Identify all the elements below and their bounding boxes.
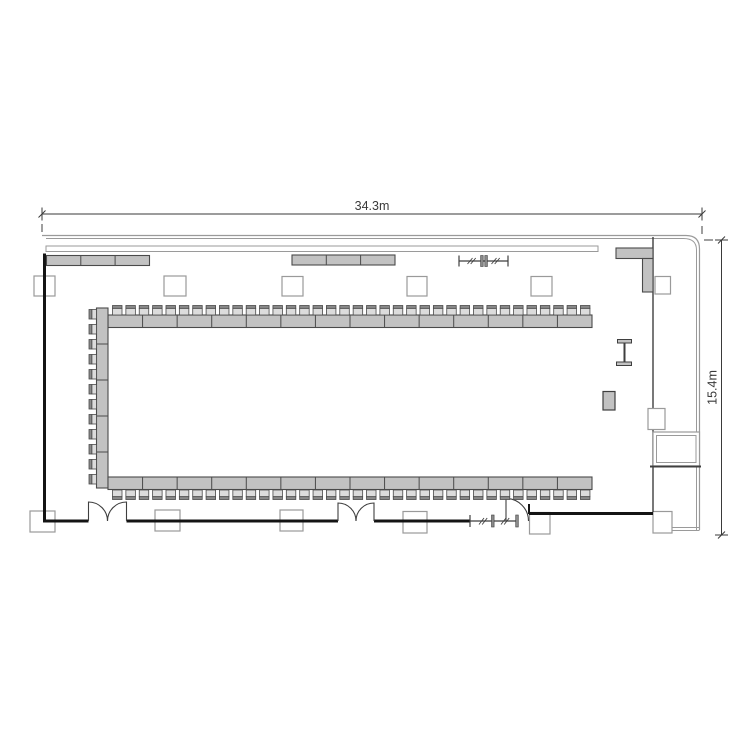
dim-height-label: 15.4m: [706, 370, 720, 405]
chair-row-top-back: [460, 306, 470, 309]
chair-row-top-back: [206, 306, 216, 309]
chair-row-top: [260, 308, 270, 315]
chair-row-bottom: [166, 490, 176, 497]
chair-row-top: [393, 308, 403, 315]
chair-row-bottom-back: [219, 497, 229, 500]
chair-row-bottom: [139, 490, 149, 497]
chair-row-bottom-back: [380, 497, 390, 500]
chair-row-bottom-back: [340, 497, 350, 500]
chair-row-bottom: [367, 490, 377, 497]
chair-col-left-back: [89, 340, 92, 350]
chair-row-bottom-back: [139, 497, 149, 500]
chair-row-top: [300, 308, 310, 315]
double-door-mid-leaf-a: [338, 503, 356, 521]
chair-col-left: [92, 340, 97, 350]
chair-row-top-back: [326, 306, 336, 309]
chair-row-bottom-back: [540, 497, 550, 500]
chair-row-bottom: [393, 490, 403, 497]
chair-row-bottom-back: [206, 497, 216, 500]
chair-col-left-back: [89, 355, 92, 365]
chair-row-bottom-back: [554, 497, 564, 500]
chair-row-top: [326, 308, 336, 315]
chair-row-bottom: [219, 490, 229, 497]
chair-row-bottom-back: [580, 497, 590, 500]
chair-row-top-back: [166, 306, 176, 309]
chair-row-top-back: [487, 306, 497, 309]
chair-col-left-back: [89, 475, 92, 485]
chair-row-bottom-back: [487, 497, 497, 500]
chair-row-bottom-back: [126, 497, 135, 500]
chair-row-top-back: [420, 306, 430, 309]
chair-row-bottom: [260, 490, 270, 497]
chair-row-bottom: [554, 490, 564, 497]
chair-col-left: [92, 445, 97, 455]
chair-row-bottom: [286, 490, 296, 497]
chair-row-bottom-back: [286, 497, 296, 500]
chair-row-top-back: [433, 306, 443, 309]
chair-row-top: [380, 308, 390, 315]
chair-row-top: [433, 308, 443, 315]
chair-col-left-back: [89, 370, 92, 380]
partition-bottom-stack: [492, 515, 495, 527]
chair-col-left-back: [89, 400, 92, 410]
chair-row-bottom: [473, 490, 483, 497]
chair-row-top: [460, 308, 470, 315]
chair-row-top: [313, 308, 323, 315]
chair-row-top-back: [179, 306, 189, 309]
chair-row-bottom: [500, 490, 510, 497]
chair-row-bottom: [153, 490, 163, 497]
chair-row-top: [166, 308, 176, 315]
chair-row-bottom: [380, 490, 390, 497]
chair-row-bottom: [113, 490, 123, 497]
chair-col-left-back: [89, 445, 92, 455]
chair-col-left: [92, 460, 97, 470]
chair-row-top: [567, 308, 577, 315]
chair-row-bottom-back: [326, 497, 336, 500]
chair-col-left-back: [89, 460, 92, 470]
chair-row-bottom-back: [179, 497, 189, 500]
chair-row-bottom: [514, 490, 524, 497]
chair-row-bottom: [407, 490, 417, 497]
chair-row-top: [126, 308, 135, 315]
chair-row-top: [514, 308, 524, 315]
chair-row-top-back: [126, 306, 135, 309]
chair-row-top: [487, 308, 497, 315]
chair-row-bottom: [340, 490, 350, 497]
chair-row-bottom: [193, 490, 203, 497]
chair-col-left: [92, 355, 97, 365]
chair-row-top: [500, 308, 510, 315]
chair-row-bottom: [273, 490, 283, 497]
corner-counter-v: [643, 259, 654, 293]
chair-row-top: [580, 308, 590, 315]
chair-row-bottom-back: [567, 497, 577, 500]
chair-row-top: [407, 308, 417, 315]
chair-row-bottom-back: [407, 497, 417, 500]
chair-row-bottom-back: [353, 497, 363, 500]
chair-row-top: [340, 308, 350, 315]
chair-col-left: [92, 325, 97, 335]
chair-row-top-back: [113, 306, 123, 309]
chair-col-left: [92, 370, 97, 380]
chair-row-top: [139, 308, 149, 315]
chair-row-bottom-back: [393, 497, 403, 500]
chair-col-left-back: [89, 385, 92, 395]
chair-row-bottom-back: [153, 497, 163, 500]
chair-row-bottom: [527, 490, 537, 497]
chair-row-bottom: [313, 490, 323, 497]
chair-row-top: [527, 308, 537, 315]
chair-row-top: [367, 308, 377, 315]
chair-row-top: [353, 308, 363, 315]
chair-row-bottom: [447, 490, 457, 497]
chair-row-bottom-back: [260, 497, 270, 500]
chair-row-bottom-back: [447, 497, 457, 500]
chair-row-top-back: [500, 306, 510, 309]
chair-row-top-back: [219, 306, 229, 309]
screen-cap-bottom: [617, 362, 632, 366]
chair-row-top-back: [300, 306, 310, 309]
chair-row-top: [179, 308, 189, 315]
chair-row-top-back: [473, 306, 483, 309]
chair-row-top-back: [407, 306, 417, 309]
chair-col-left: [92, 415, 97, 425]
chair-row-top-back: [514, 306, 524, 309]
chair-row-bottom: [353, 490, 363, 497]
chair-row-top-back: [540, 306, 550, 309]
chair-row-top: [219, 308, 229, 315]
column: [648, 409, 665, 430]
chair-row-top: [113, 308, 123, 315]
double-door-left-leaf-a: [89, 502, 108, 521]
chair-row-bottom-back: [193, 497, 203, 500]
chair-row-bottom: [580, 490, 590, 497]
partition-top-stack: [481, 256, 484, 267]
chair-row-top: [554, 308, 564, 315]
window-band: [46, 246, 598, 252]
chair-row-bottom: [567, 490, 577, 497]
chair-row-top: [233, 308, 243, 315]
counter: [292, 255, 395, 265]
column: [407, 277, 427, 297]
chair-col-left: [92, 385, 97, 395]
chair-col-left: [92, 475, 97, 485]
chair-row-bottom-back: [113, 497, 123, 500]
chair-col-left-back: [89, 415, 92, 425]
chair-row-top-back: [393, 306, 403, 309]
chair-row-top-back: [353, 306, 363, 309]
chair-row-bottom-back: [313, 497, 323, 500]
chair-row-bottom: [540, 490, 550, 497]
table-run-left: [97, 308, 109, 488]
chair-row-bottom: [420, 490, 430, 497]
chair-row-top-back: [193, 306, 203, 309]
chair-row-top-back: [153, 306, 163, 309]
chair-col-left-back: [89, 430, 92, 440]
chair-row-bottom: [460, 490, 470, 497]
corner-counter-h: [616, 248, 653, 259]
chair-row-bottom-back: [300, 497, 310, 500]
column: [530, 513, 551, 535]
chair-row-top-back: [340, 306, 350, 309]
chair-row-bottom: [487, 490, 497, 497]
chair-row-bottom: [326, 490, 336, 497]
chair-row-top-back: [447, 306, 457, 309]
chair-col-left: [92, 400, 97, 410]
chair-row-bottom-back: [514, 497, 524, 500]
chair-row-top: [206, 308, 216, 315]
chair-row-bottom-back: [166, 497, 176, 500]
chair-col-left-back: [89, 325, 92, 335]
chair-row-top-back: [139, 306, 149, 309]
chair-row-bottom-back: [473, 497, 483, 500]
chair-row-bottom: [433, 490, 443, 497]
chair-row-bottom-back: [233, 497, 243, 500]
chair-row-top-back: [367, 306, 377, 309]
chair-row-top-back: [554, 306, 564, 309]
chair-col-left: [92, 430, 97, 440]
floor-plan-page: 34.3m15.4m: [0, 0, 750, 750]
floor-plan: 34.3m15.4m: [0, 0, 750, 750]
chair-row-top-back: [260, 306, 270, 309]
chair-row-top-back: [380, 306, 390, 309]
column: [282, 277, 303, 297]
chair-row-bottom-back: [500, 497, 510, 500]
partition-bottom-stack: [516, 515, 519, 527]
dim-width-label: 34.3m: [355, 199, 390, 213]
column: [164, 276, 186, 296]
double-door-mid-leaf-b: [356, 503, 374, 521]
column: [653, 512, 672, 534]
equipment-stand: [603, 392, 615, 411]
chair-row-top-back: [233, 306, 243, 309]
chair-row-top-back: [246, 306, 256, 309]
chair-row-bottom: [246, 490, 256, 497]
chair-row-bottom-back: [273, 497, 283, 500]
chair-row-top: [447, 308, 457, 315]
chair-row-top: [286, 308, 296, 315]
chair-col-left: [92, 310, 97, 320]
chair-row-bottom: [126, 490, 135, 497]
chair-row-bottom: [300, 490, 310, 497]
chair-row-top-back: [286, 306, 296, 309]
chair-row-bottom: [233, 490, 243, 497]
chair-row-top: [193, 308, 203, 315]
chair-row-bottom: [206, 490, 216, 497]
chair-row-bottom-back: [420, 497, 430, 500]
counter: [47, 256, 150, 266]
chair-row-top-back: [580, 306, 590, 309]
chair-row-bottom-back: [460, 497, 470, 500]
chair-row-top-back: [527, 306, 537, 309]
double-door-left-leaf-b: [108, 502, 127, 521]
chair-row-bottom-back: [367, 497, 377, 500]
partition-top-stack: [485, 256, 488, 267]
chair-row-top: [420, 308, 430, 315]
chair-row-top: [246, 308, 256, 315]
chair-row-top: [273, 308, 283, 315]
screen-cap-top: [618, 340, 632, 344]
chair-row-top: [153, 308, 163, 315]
chair-col-left-back: [89, 310, 92, 320]
chair-row-top: [540, 308, 550, 315]
chair-row-top: [473, 308, 483, 315]
chair-row-top-back: [567, 306, 577, 309]
column: [531, 277, 552, 297]
chair-row-bottom-back: [433, 497, 443, 500]
chair-row-bottom-back: [246, 497, 256, 500]
chair-row-bottom-back: [527, 497, 537, 500]
chair-row-bottom: [179, 490, 189, 497]
column: [655, 277, 671, 295]
shaft-outer: [653, 432, 700, 466]
chair-row-top-back: [273, 306, 283, 309]
chair-row-top-back: [313, 306, 323, 309]
